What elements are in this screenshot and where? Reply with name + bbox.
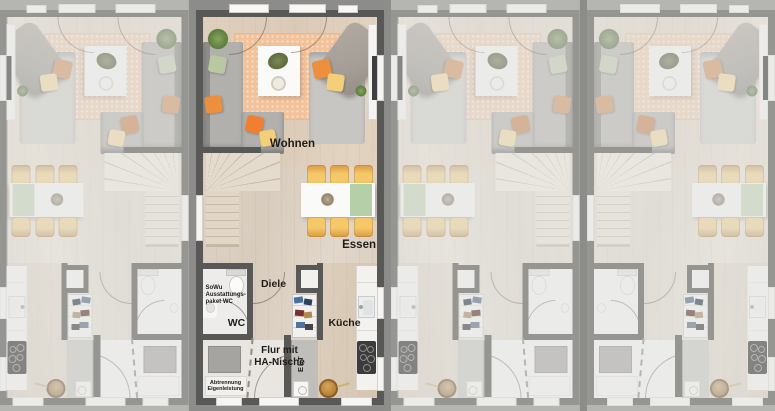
counter-seam [747,330,768,331]
unit-4[interactable]: Wohnen Essen Diele WC Küche Flur mit HA-… [587,0,775,411]
window-entry-side [377,357,384,391]
partition-cabinet [596,376,638,396]
pillow-yellow [498,129,517,148]
appliance [684,381,700,397]
burner [758,355,766,363]
burner [754,364,762,372]
storage-niche [453,265,480,293]
balcony-door-1 [116,4,156,13]
dining-chair [307,217,326,237]
appliance-door [469,386,478,395]
window-top-small [27,5,47,13]
sink-basin [754,300,764,315]
shelf-item [694,312,703,319]
burner [401,346,408,353]
toilet-cistern [617,269,637,276]
dining-chair [698,217,717,237]
wicker-basket [710,379,729,398]
pillow-yellow-2 [39,73,58,92]
toilet-bowl [532,276,547,295]
shelf-item [80,310,89,317]
shelf-item [303,298,312,305]
table-runner [404,184,426,216]
wicker-basket [319,379,338,398]
storage-niche [296,265,323,293]
shelf-item [293,296,303,303]
kitchen-sink [358,296,375,318]
wall-stairwell [515,147,573,153]
dining-chair [450,217,469,237]
window-living-side [391,55,398,101]
dining-chair [721,217,740,237]
pillow-yellow [258,129,277,148]
pillow-green [548,55,568,75]
wc-sink-basin [206,303,215,313]
window-kitchen [391,287,398,319]
counter-seam [7,282,28,283]
toilet-cistern [226,269,246,276]
sink-faucet [412,305,416,309]
toilet-bowl [141,276,156,295]
dining-chair [721,165,740,185]
wall-stairwell [203,147,261,153]
niche-interior [458,270,475,288]
window-stairs [573,195,580,241]
table-runner [13,184,35,216]
pillow-orange [594,95,613,114]
sink-basin [402,300,412,315]
window-kitchen [768,287,775,319]
plant-tv [16,84,30,98]
sink-faucet [359,305,363,309]
shelf-item [80,322,89,328]
dining-chair [427,217,446,237]
kitchen-sink [9,296,26,318]
dining-chair [59,217,78,237]
window-top-small [729,5,749,13]
entry-door-opening [86,397,126,406]
cooktop [8,341,27,374]
door-opening-right [732,397,763,406]
plant-tv [407,84,421,98]
shelf-item [463,324,471,330]
niche-interior [67,270,84,288]
door-opening-left [534,397,560,406]
sink-faucet [21,305,25,309]
burner [751,354,758,361]
burner [408,354,415,361]
stairs-winder [597,153,671,191]
door-opening-left [216,397,242,406]
coffee-table-tray [271,76,286,91]
dining-chair [330,165,349,185]
balcony-door-1 [229,4,269,13]
shelf-item [472,296,482,303]
burner [17,344,25,352]
shelf-item [684,296,694,303]
pillow-orange [552,95,571,114]
stairs-winder [496,153,570,191]
unit-1[interactable]: Wohnen Essen Diele WC Küche Flur mit HA-… [0,0,189,411]
pillow-yellow [649,129,668,148]
dining-chair [36,217,55,237]
burner [359,344,367,352]
dining-chair [403,217,422,237]
door-opening-left [143,397,169,406]
counter-seam [747,282,768,283]
burner [367,346,374,353]
partition-cabinet [138,376,180,396]
appliance [293,381,309,397]
burner [400,355,408,363]
toilet-cistern [530,269,550,276]
balcony-door-2 [450,4,487,13]
dining-chair [330,217,349,237]
window-entry-side [768,357,775,391]
counter-seam [398,282,419,283]
ha-niche-cabinet [535,346,568,373]
table-centerpiece [439,190,458,209]
wall-wc-bottom [132,334,182,340]
appliance-door [689,386,698,395]
floor-plan-render [391,0,580,411]
table-centerpiece [318,190,337,209]
wall-wc-bottom [594,334,644,340]
table-centerpiece [709,190,728,209]
window-living-side [768,55,775,101]
table-centerpiece [48,190,67,209]
wall-stairwell [124,147,182,153]
niche-interior [692,270,709,288]
window-top-small [338,5,358,13]
tv-screen [398,56,403,100]
stairs-winder [105,153,179,191]
window-living-side [377,55,384,101]
kitchen-sink [400,296,417,318]
shelf-item [687,322,696,328]
toilet-bowl [620,276,635,295]
stairs-flight [146,191,179,247]
burner [360,354,367,361]
dining-chair [12,217,31,237]
appliance [76,381,92,397]
wicker-basket [47,379,66,398]
burner [363,364,371,372]
counter-seam [398,330,419,331]
dining-chair [36,165,55,185]
wall-stairwell [594,147,652,153]
window-top-small [418,5,438,13]
shelf-item [296,322,305,328]
shelf-item [463,298,472,305]
window-stairs [182,195,189,241]
pillow-green [157,55,177,75]
counter-seam [356,330,377,331]
cooktop [748,341,767,374]
sink-basin [363,300,373,315]
storage-niche [62,265,89,293]
wall-wc-bottom [203,334,253,340]
counter-seam [356,282,377,283]
dining-chair [12,165,31,185]
sink-basin [11,300,21,315]
stairs-winder [206,153,280,191]
door-opening-right [13,397,44,406]
appliance-door [78,386,87,395]
burner [408,344,416,352]
tv-screen [7,56,12,100]
burner [13,364,21,372]
dining-chair [427,165,446,185]
dining-chair [59,165,78,185]
balcony-door-2 [59,4,96,13]
niche-interior [301,270,318,288]
appliance [467,381,483,397]
shelf-item [696,324,704,330]
window-kitchen [377,287,384,319]
wall-wc-bottom [523,334,573,340]
wc-sink-basin [170,303,179,313]
unit-2[interactable]: Wohnen Essen Diele WC Küche Flur mit HA-… [196,0,385,411]
ha-niche-cabinet [599,346,632,373]
dining-chair [354,217,373,237]
pillow-green [207,55,227,75]
tv-screen [372,56,377,100]
ha-niche-cabinet [208,346,241,373]
dining-chair [307,165,326,185]
balcony-door-2 [680,4,717,13]
floor-plan-render [196,0,385,411]
cooktop [399,341,418,374]
entry-door-opening [477,397,517,406]
window-stairs [196,195,203,241]
door-opening-left [607,397,633,406]
dining-chair [403,165,422,185]
burner [758,346,765,353]
burner [17,354,24,361]
pillow-yellow-2 [430,73,449,92]
dining-chair [354,165,373,185]
door-opening-right [404,397,435,406]
floor-plan-render [587,0,775,411]
toilet-bowl [229,276,244,295]
coffee-table-tray [662,76,677,91]
coffee-table-tray [490,76,505,91]
shelf-item [471,322,480,328]
balcony-door-2 [289,4,326,13]
toilet-cistern [139,269,159,276]
window-entry-side [391,357,398,391]
shelf-item [303,312,312,319]
stairs-flight [537,191,570,247]
appliance-door [298,386,307,395]
wc-sink-basin [597,303,606,313]
stairs-flight [597,191,630,247]
door-opening-right [341,397,372,406]
balcony-door-1 [620,4,660,13]
shelf-item [72,312,81,319]
dining-chair [698,165,717,185]
table-runner [741,184,763,216]
stairs-flight [206,191,239,247]
window-entry-side [0,357,7,391]
counter-seam [7,330,28,331]
entry-door-opening [650,397,690,406]
partition-cabinet [205,376,247,396]
pillow-green [598,55,618,75]
wc-sink-basin [561,303,570,313]
kitchen-sink [749,296,766,318]
pillow-yellow [107,129,126,148]
burner [750,344,758,352]
window-living-side [0,55,7,101]
burner [367,355,375,363]
burner [9,355,17,363]
burner [10,346,17,353]
ha-niche-cabinet [144,346,177,373]
entry-door-opening [259,397,299,406]
coffee-table-tray [99,76,114,91]
pillow-orange [203,95,222,114]
shelf-item [305,324,313,330]
shelf-item [81,296,91,303]
tv-screen [763,56,768,100]
unit-3[interactable]: Wohnen Essen Diele WC Küche Flur mit HA-… [391,0,580,411]
shelf-item [72,324,80,330]
shelf-item [685,310,694,317]
window-kitchen [0,287,7,319]
partition-cabinet [529,376,571,396]
shelf-item [294,310,303,317]
pillow-orange [161,95,180,114]
window-stairs [587,195,594,241]
dining-chair [450,165,469,185]
shelf-item [72,298,81,305]
shelf-item [471,310,480,317]
pillow-yellow-2 [716,73,735,92]
wicker-basket [438,379,457,398]
sink-faucet [750,305,754,309]
floor-plan-strip: Wohnen Essen Diele WC Küche Flur mit HA-… [0,0,775,411]
cooktop [357,341,376,374]
shelf-item [694,298,703,305]
pillow-yellow-2 [325,73,344,92]
balcony-door-1 [507,4,547,13]
dining-chair [745,217,764,237]
floor-plan-render [0,0,189,411]
burner [404,364,412,372]
table-runner [350,184,372,216]
storage-niche [687,265,714,293]
shelf-item [463,312,472,319]
dining-chair [745,165,764,185]
